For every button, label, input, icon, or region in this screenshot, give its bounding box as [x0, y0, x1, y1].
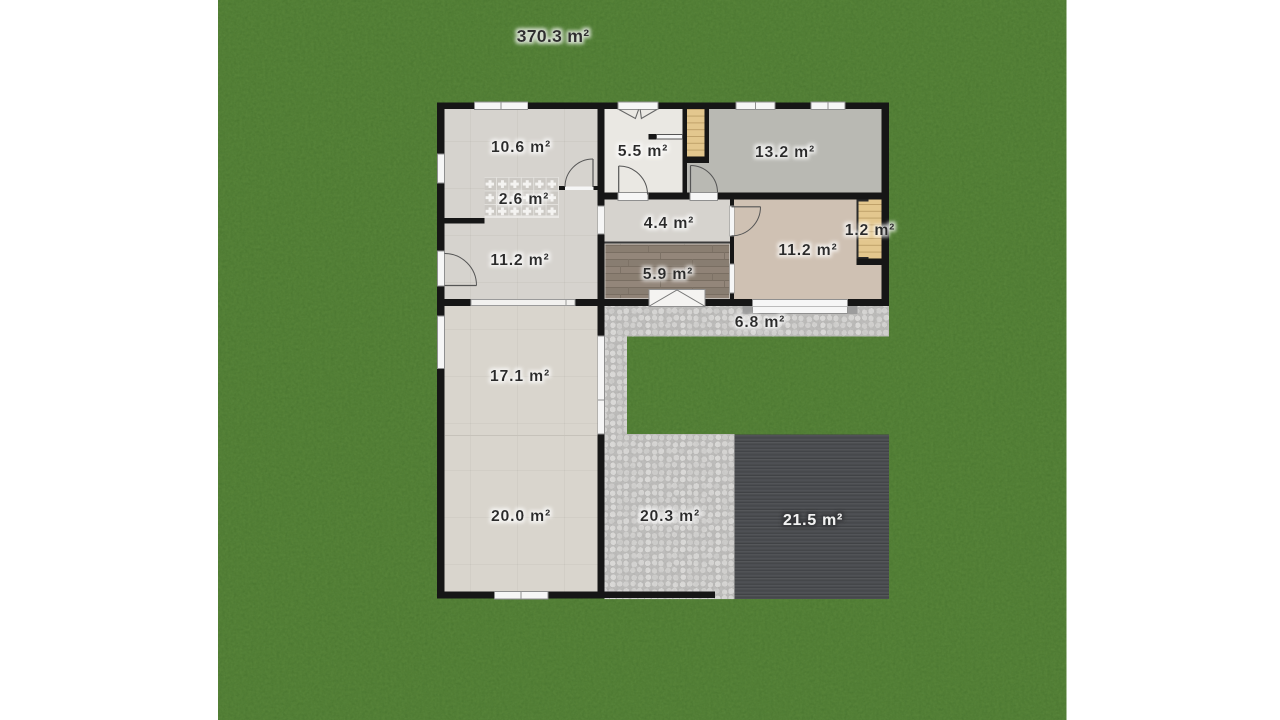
svg-text:6.8 m²: 6.8 m²	[735, 314, 785, 331]
svg-text:4.4 m²: 4.4 m²	[644, 215, 694, 232]
svg-text:370.3 m²: 370.3 m²	[517, 26, 590, 46]
svg-text:11.2 m²: 11.2 m²	[490, 252, 549, 269]
svg-text:13.2 m²: 13.2 m²	[755, 144, 815, 161]
svg-text:20.3 m²: 20.3 m²	[640, 508, 700, 525]
svg-text:11.2 m²: 11.2 m²	[778, 242, 837, 259]
svg-text:21.5 m²: 21.5 m²	[783, 512, 843, 529]
svg-text:20.0 m²: 20.0 m²	[491, 508, 551, 525]
svg-text:5.5 m²: 5.5 m²	[618, 143, 668, 160]
svg-text:2.6 m²: 2.6 m²	[499, 191, 549, 208]
svg-text:17.1 m²: 17.1 m²	[490, 368, 550, 385]
svg-text:5.9 m²: 5.9 m²	[643, 266, 693, 283]
svg-text:10.6 m²: 10.6 m²	[491, 139, 551, 156]
svg-text:1.2 m²: 1.2 m²	[845, 222, 895, 239]
